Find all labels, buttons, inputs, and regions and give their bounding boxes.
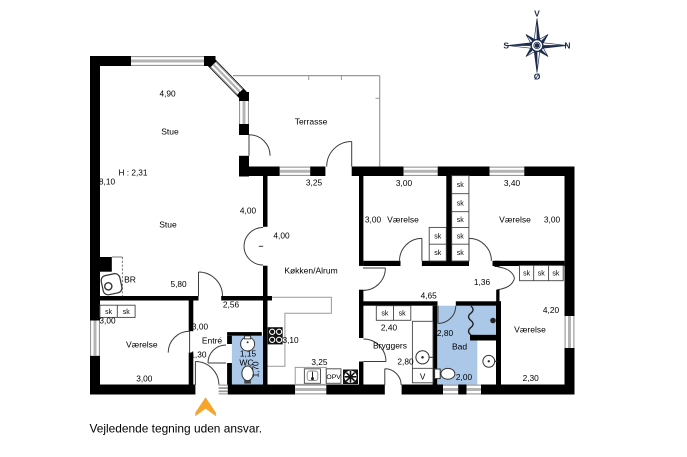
svg-text:sk: sk (399, 311, 407, 318)
svg-text:sk: sk (457, 217, 465, 224)
svg-text:3,25: 3,25 (311, 357, 328, 367)
svg-text:OPV: OPV (326, 374, 341, 381)
svg-text:sk: sk (123, 309, 131, 316)
svg-text:1,30: 1,30 (190, 350, 207, 360)
svg-text:sk: sk (434, 250, 442, 257)
svg-text:Ø: Ø (534, 72, 541, 82)
svg-text:V: V (534, 9, 540, 19)
svg-text:8,10: 8,10 (99, 176, 116, 186)
svg-text:Værelse: Værelse (514, 324, 546, 334)
svg-text:2,80: 2,80 (397, 357, 414, 367)
svg-text:sk: sk (457, 250, 465, 257)
svg-text:V: V (420, 371, 426, 381)
svg-text:Entré: Entré (202, 335, 223, 345)
svg-text:sk: sk (552, 271, 560, 278)
svg-text:3,00: 3,00 (544, 214, 561, 224)
svg-text:N: N (564, 41, 570, 51)
svg-text:Bad: Bad (452, 341, 467, 351)
svg-text:2,40: 2,40 (381, 322, 398, 332)
svg-text:3,00: 3,00 (99, 316, 116, 326)
svg-text:Stue: Stue (161, 127, 179, 137)
svg-text:sk: sk (523, 271, 531, 278)
svg-text:S: S (503, 41, 509, 51)
svg-text:4,20: 4,20 (543, 305, 560, 315)
svg-text:Vejledende tegning uden ansvar: Vejledende tegning uden ansvar. (90, 422, 263, 436)
svg-text:BR: BR (124, 274, 136, 284)
svg-text:4,90: 4,90 (160, 89, 177, 99)
svg-text:2,80: 2,80 (437, 328, 454, 338)
svg-text:H : 2,31: H : 2,31 (118, 167, 147, 177)
svg-text:1,36: 1,36 (474, 277, 491, 287)
svg-text:3,25: 3,25 (306, 177, 323, 187)
svg-text:3,00: 3,00 (396, 178, 413, 188)
svg-text:Værelse: Værelse (387, 214, 419, 224)
svg-text:sk: sk (457, 233, 465, 240)
svg-text:3,00: 3,00 (192, 321, 209, 331)
svg-text:2,00: 2,00 (456, 372, 473, 382)
svg-text:sk: sk (457, 200, 465, 207)
svg-text:3,00: 3,00 (136, 374, 153, 384)
svg-text:sk: sk (434, 233, 442, 240)
svg-text:4,00: 4,00 (273, 230, 290, 240)
svg-text:Stue: Stue (159, 219, 177, 229)
svg-text:5,80: 5,80 (171, 279, 188, 289)
svg-text:4,00: 4,00 (240, 206, 257, 216)
svg-text:2,56: 2,56 (223, 299, 240, 309)
svg-text:Værelse: Værelse (126, 339, 158, 349)
svg-text:Værelse: Værelse (499, 214, 531, 224)
svg-text:1,70: 1,70 (250, 361, 260, 378)
svg-text:3,10: 3,10 (283, 335, 300, 345)
svg-text:3,40: 3,40 (504, 178, 521, 188)
svg-text:sk: sk (538, 271, 546, 278)
svg-text:sk: sk (381, 311, 389, 318)
svg-text:Terrasse: Terrasse (295, 116, 328, 126)
svg-text:2,30: 2,30 (523, 373, 540, 383)
svg-text:Bryggers: Bryggers (373, 340, 407, 350)
svg-text:3,00: 3,00 (365, 214, 382, 224)
svg-text:4,65: 4,65 (421, 291, 438, 301)
svg-text:Køkken/Alrum: Køkken/Alrum (284, 265, 337, 275)
svg-text:sk: sk (457, 182, 465, 189)
